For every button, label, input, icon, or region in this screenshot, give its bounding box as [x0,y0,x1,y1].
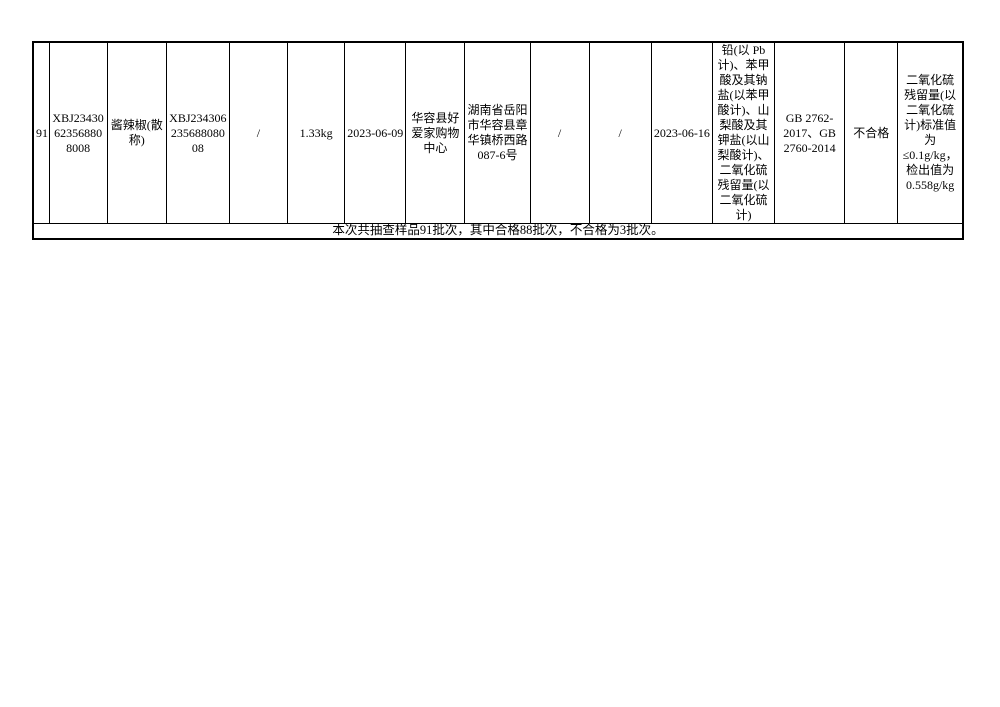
cell-date-tested: 2023-06-16 [651,42,712,224]
document-page: 91 XBJ23430623568808008 酱辣椒(散称) XBJ23430… [0,0,1000,707]
cell-product-name: 酱辣椒(散称) [107,42,166,224]
cell-sample-code: XBJ23430623568808008 [49,42,107,224]
cell-weight: 1.33kg [288,42,345,224]
cell-date-sampled: 2023-06-09 [345,42,406,224]
cell-slash-2: / [530,42,589,224]
cell-result: 不合格 [845,42,898,224]
table-row-91: 91 XBJ23430623568808008 酱辣椒(散称) XBJ23430… [33,42,963,224]
cell-slash-3: / [589,42,651,224]
cell-address: 湖南省岳阳市华容县章华镇桥西路087-6号 [465,42,530,224]
cell-result-detail: 二氧化硫残留量(以二氧化硫计)标准值为≤0.1g/kg，检出值为0.558g/k… [898,42,963,224]
cell-batch-code: XBJ23430623568808008 [166,42,229,224]
cell-standards: GB 2762-2017、GB 2760-2014 [775,42,845,224]
cell-store-name: 华容县好爱家购物中心 [406,42,465,224]
cell-test-items: 铅(以 Pb 计)、苯甲酸及其钠盐(以苯甲酸计)、山梨酸及其钾盐(以山梨酸计)、… [712,42,774,224]
inspection-results-table: 91 XBJ23430623568808008 酱辣椒(散称) XBJ23430… [32,41,964,240]
cell-row-index: 91 [33,42,49,224]
summary-text: 本次共抽查样品91批次，其中合格88批次，不合格为3批次。 [33,224,963,239]
summary-row: 本次共抽查样品91批次，其中合格88批次，不合格为3批次。 [33,224,963,239]
cell-slash-1: / [229,42,287,224]
